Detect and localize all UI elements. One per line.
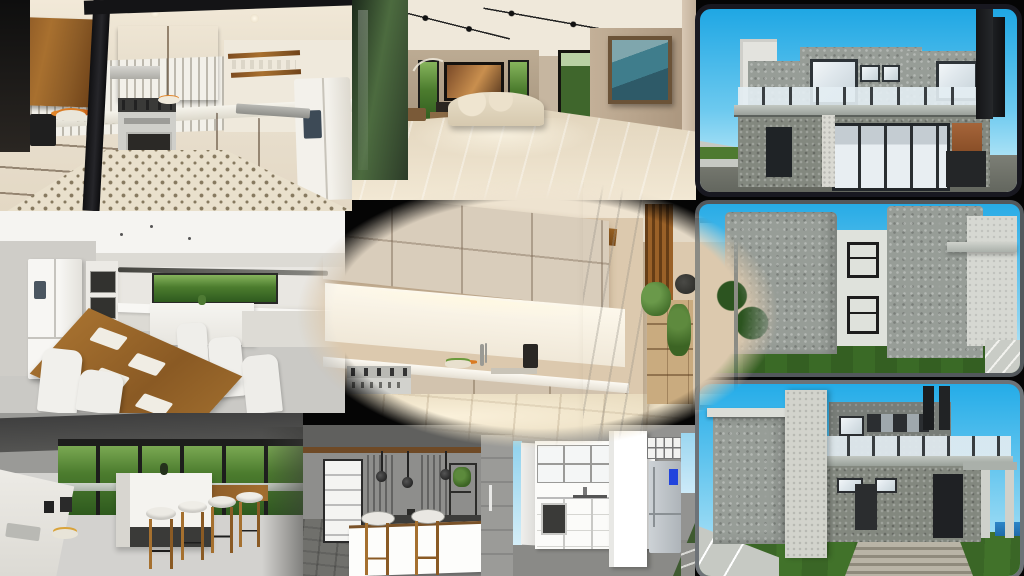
upper-cabinet-wood — [118, 26, 218, 100]
wall-oven — [90, 271, 116, 293]
range-hood — [110, 66, 160, 79]
tall-white-column — [609, 431, 647, 567]
tile-kitchen-vignette — [295, 178, 781, 450]
counter-appliance — [44, 501, 54, 513]
trailing-plant — [667, 304, 691, 356]
dark-left-corner — [0, 0, 30, 152]
island-plant — [160, 463, 168, 475]
balcony-slab — [734, 105, 994, 117]
side-window-lower — [847, 296, 879, 334]
stove-controls — [124, 118, 170, 124]
coffee-maker — [30, 114, 56, 146]
tile-living-room — [352, 0, 696, 200]
sink-basin — [491, 368, 537, 374]
shelf-dishes — [232, 60, 296, 69]
dining-chair — [75, 368, 124, 413]
bar-stool — [208, 496, 236, 554]
control-knobs — [352, 382, 406, 388]
fruit-bowl — [56, 110, 86, 121]
balcony-glass-railing — [825, 436, 1011, 458]
pendant-wire — [407, 451, 409, 479]
door-mullion — [734, 223, 738, 405]
cooktop — [573, 495, 607, 498]
pendant-lamp — [440, 469, 451, 480]
white-side-wall — [521, 443, 535, 546]
chimney — [923, 386, 934, 430]
chimney — [993, 17, 1005, 117]
entry-steps — [845, 542, 973, 576]
stool-legs — [365, 523, 389, 575]
tile-island-kitchen — [0, 413, 303, 576]
pergola-pillar — [981, 470, 990, 538]
white-volume-right — [967, 216, 1017, 346]
pendant-lamp — [376, 471, 387, 482]
pergola-slab — [963, 462, 1017, 470]
fridge-seam — [54, 259, 56, 337]
entry-door — [855, 484, 877, 530]
spot-light — [188, 237, 191, 240]
driveway-lines — [985, 340, 1020, 373]
sink-faucet — [480, 344, 484, 366]
placemat — [134, 393, 173, 413]
fruit-plate — [158, 96, 180, 104]
wood-accent — [952, 123, 982, 151]
house-front — [738, 31, 1000, 173]
spot-light — [120, 233, 123, 236]
island-plant — [198, 295, 206, 305]
sketch-stool — [411, 509, 443, 576]
placemat — [89, 327, 128, 350]
entry-pillar — [785, 390, 827, 558]
stone-column — [822, 115, 835, 187]
sliding-glass-doors — [832, 123, 950, 191]
pendant-lamp — [402, 477, 413, 488]
roof-ledge — [947, 242, 1017, 252]
pendant-wire — [381, 451, 383, 473]
built-in-oven — [541, 503, 567, 535]
dark-recess — [946, 151, 986, 187]
left-glass-doors — [352, 0, 408, 180]
bar-stool — [146, 507, 176, 569]
stool-legs — [211, 507, 233, 553]
stool-legs — [239, 502, 260, 547]
fruit-board — [52, 529, 78, 539]
tile-house-front — [695, 4, 1022, 197]
stool-legs — [149, 519, 173, 569]
fridge-display — [34, 281, 46, 299]
lower-window — [875, 478, 897, 493]
chimney — [976, 9, 993, 119]
bar-stool — [236, 492, 263, 548]
glass-door-garden — [695, 218, 781, 410]
upper-window — [839, 416, 864, 436]
shelf-frame — [449, 463, 477, 519]
sketch-stool — [361, 511, 393, 576]
pergola-pillar — [1005, 470, 1014, 538]
gas-burners — [351, 368, 407, 376]
fridge-display — [669, 469, 678, 485]
plant-pot — [675, 274, 697, 294]
garden-window — [152, 273, 278, 304]
side-window-upper — [847, 242, 879, 278]
ceiling-light — [250, 14, 259, 23]
fridge-seam — [649, 513, 681, 515]
tile-dining-kitchen — [0, 211, 345, 413]
upper-window-band — [867, 414, 929, 432]
trailing-plant — [641, 282, 671, 316]
spot-light — [150, 225, 153, 228]
bar-stool — [178, 501, 207, 561]
dark-opening — [933, 474, 963, 538]
balcony-glass-railing — [738, 87, 990, 107]
upper-window-small — [882, 65, 900, 82]
stool-legs — [181, 512, 204, 560]
render-collage — [0, 0, 1024, 576]
entry-door-dark — [766, 127, 792, 177]
cabinet-handle — [489, 485, 492, 511]
marble-pillar — [583, 178, 643, 450]
framed-painting — [608, 36, 672, 104]
right-cabinet-wall — [481, 435, 513, 576]
curved-sofa — [448, 92, 544, 126]
chimney — [939, 386, 950, 430]
coffee-machine — [60, 497, 72, 512]
shelf-plant — [453, 467, 471, 487]
upper-window-small — [860, 65, 880, 82]
fruit-on-counter — [445, 360, 471, 368]
pendant-wire — [445, 451, 447, 471]
coffee-machine — [523, 344, 538, 368]
driveway — [681, 543, 695, 576]
shelf-board — [451, 491, 471, 493]
sketch-fridge — [649, 461, 681, 553]
glass-reflection — [358, 10, 368, 170]
dining-chair — [241, 353, 283, 413]
stool-legs — [415, 521, 439, 575]
placemat — [127, 353, 166, 376]
fridge-handle — [653, 467, 655, 527]
